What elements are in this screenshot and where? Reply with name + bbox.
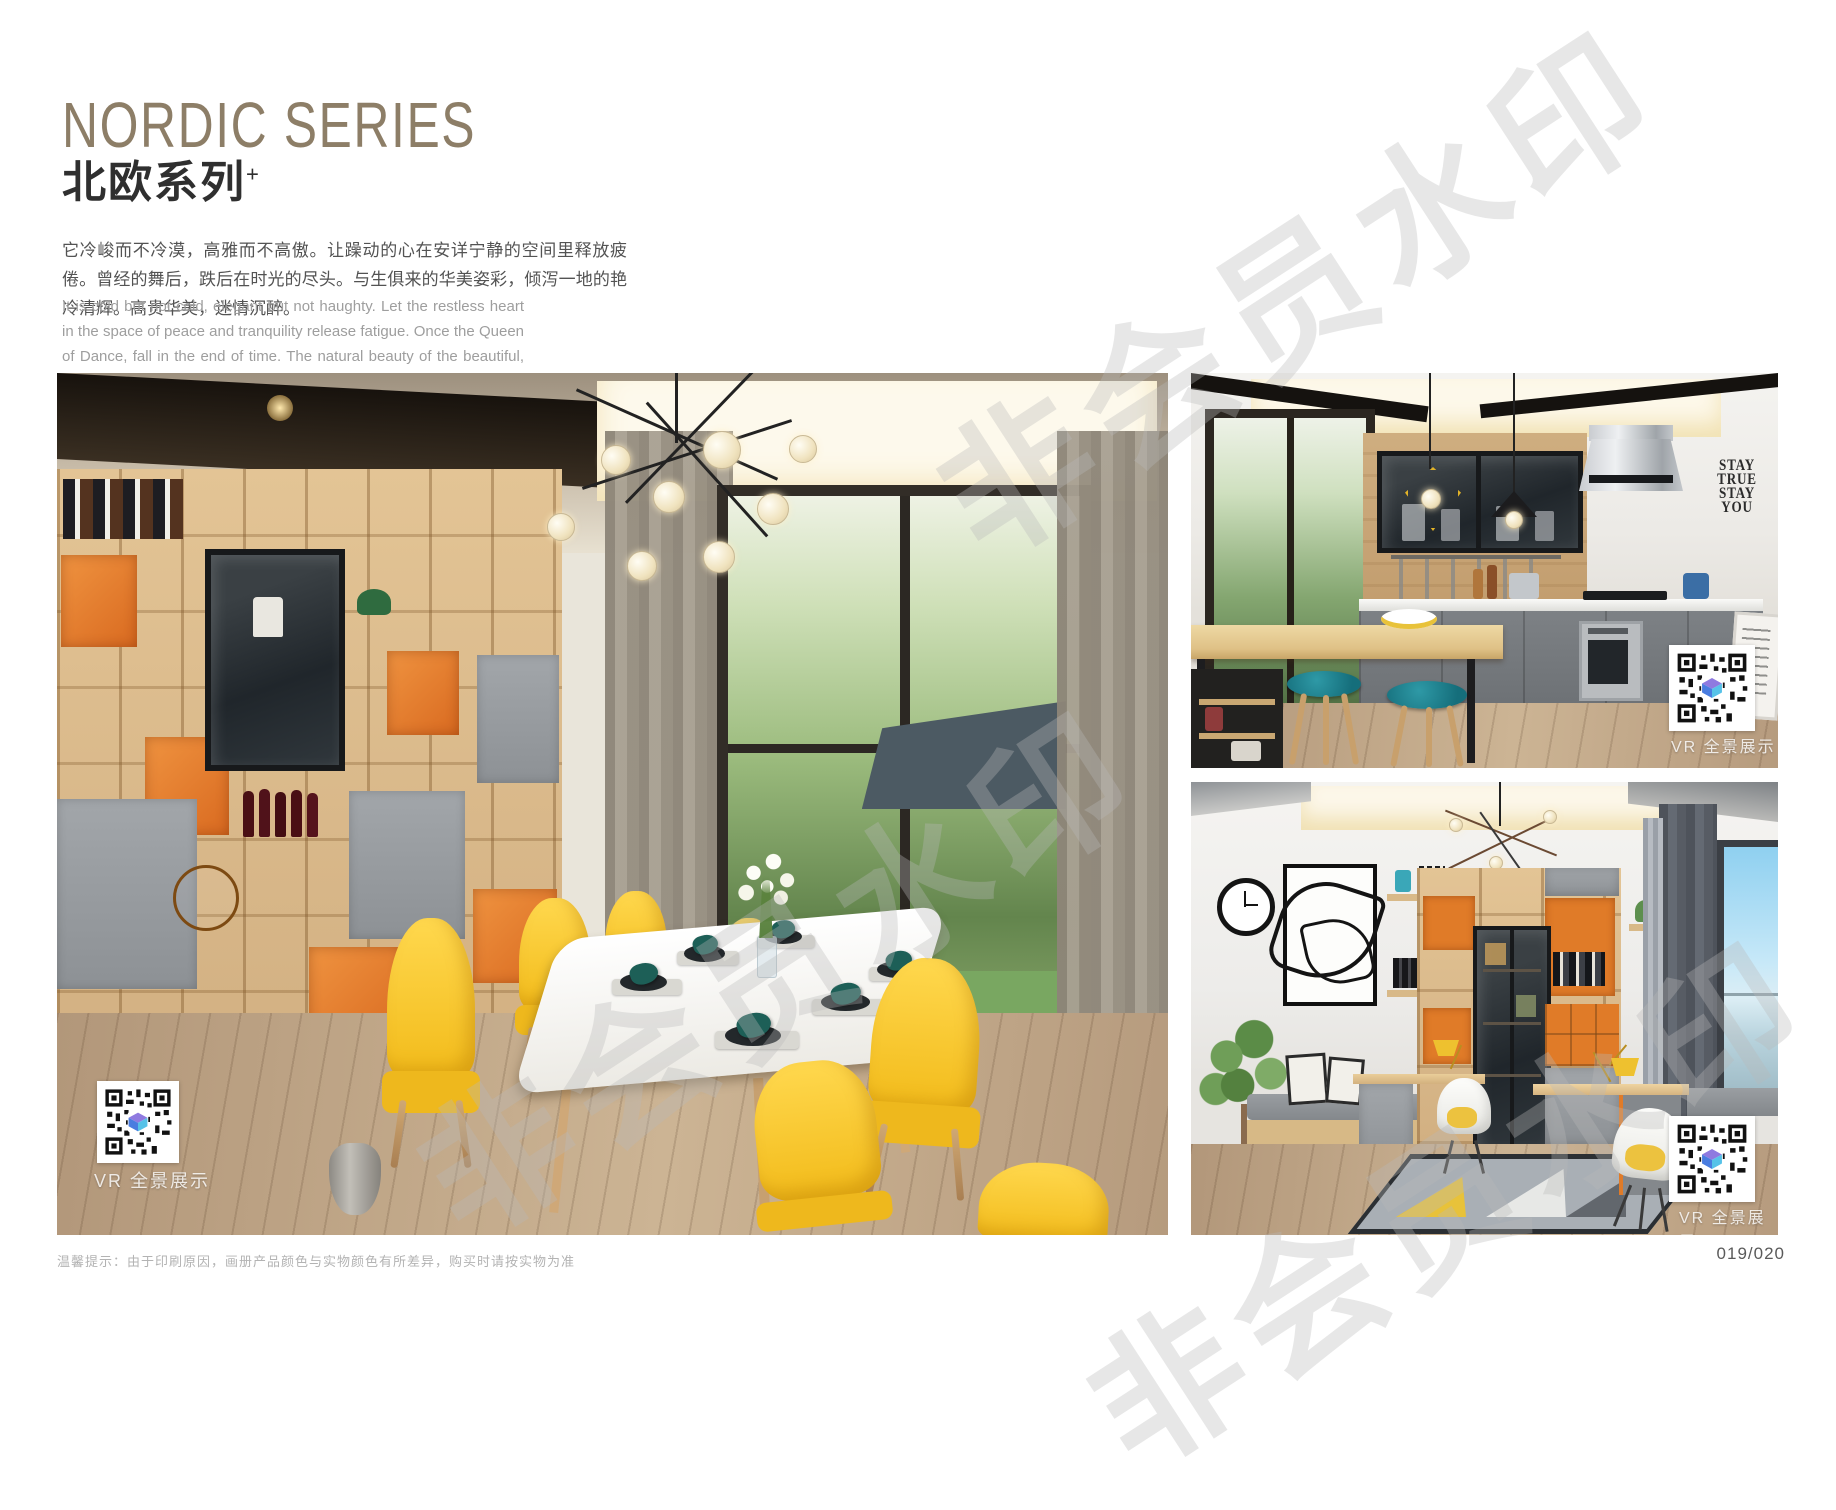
cooking-pot	[1509, 573, 1539, 599]
desk-lamp-yellow	[1583, 1040, 1639, 1088]
glass-display-cabinet	[205, 549, 345, 771]
built-in-oven	[1579, 621, 1643, 701]
study-room-photo: VR 全景展示	[1191, 782, 1778, 1235]
pendant-cord	[1429, 373, 1431, 469]
coffee-maker	[1683, 573, 1709, 599]
blue-vase	[1395, 870, 1411, 892]
gray-cabinet-door	[349, 791, 465, 939]
flower-vase	[705, 828, 825, 978]
hood-chimney	[1589, 425, 1673, 441]
wine-rack-ring	[173, 865, 239, 931]
oil-bottle	[1487, 565, 1497, 599]
footer-disclaimer: 温馨提示：由于印刷原因，画册产品颜色与实物颜色有所差异，购买时请按实物为准	[57, 1251, 575, 1270]
island-shelf-frame	[1191, 669, 1283, 768]
vr-qr-code	[97, 1081, 179, 1163]
curtain-right	[1057, 431, 1168, 1071]
wine-bottles	[243, 787, 353, 837]
study-window	[1717, 840, 1778, 1106]
pendant-bulb	[1505, 511, 1523, 529]
range-hood	[1579, 439, 1683, 491]
roof-outside	[862, 701, 1066, 809]
kitchen-photo: STAY TRUE STAY YOU	[1191, 373, 1778, 768]
catalog-page: NORDIC SERIES 北欧系列+ 它冷峻而不冷漠，高雅而不高傲。让躁动的心…	[0, 0, 1836, 1307]
fruit-bowl	[1381, 609, 1437, 629]
gray-upper-cabinet	[1545, 868, 1619, 896]
vr-panorama-label: VR 全景展示	[1671, 733, 1776, 757]
vr-qr-code	[1669, 645, 1755, 731]
leaning-frame	[1285, 1053, 1328, 1106]
pendant-cord	[1513, 373, 1515, 493]
gas-cooktop	[1583, 591, 1667, 600]
vr-panorama-label: VR 全景展示	[94, 1167, 210, 1193]
dining-room-photo: VR 全景展示	[57, 373, 1168, 1235]
island-leg	[1467, 659, 1475, 763]
upper-glass-cabinet	[1377, 451, 1583, 553]
gray-cabinet-door	[477, 655, 559, 783]
oil-bottle	[1473, 569, 1483, 599]
dining-chair	[977, 1160, 1111, 1235]
bar-stool	[1287, 671, 1361, 697]
wall-decal-stay-true: STAY TRUE STAY YOU	[1716, 459, 1759, 515]
orange-cubby	[1545, 898, 1615, 996]
sheer-curtain	[1643, 818, 1663, 1118]
desk-lamp-yellow	[1429, 1040, 1469, 1080]
orange-cubby	[1423, 896, 1475, 950]
shell-chair	[1437, 1078, 1491, 1174]
dining-chair	[748, 1055, 888, 1235]
pendant-bulb	[1421, 489, 1441, 509]
island-bar-top	[1191, 625, 1503, 659]
bar-stool	[1387, 681, 1467, 709]
chandelier	[507, 373, 847, 608]
recessed-light	[267, 395, 293, 421]
shelving-unit	[57, 469, 562, 1069]
place-setting	[715, 1025, 799, 1055]
orange-cubby	[61, 555, 137, 647]
subtitle-plus: +	[246, 161, 261, 186]
page-subtitle: 北欧系列+	[62, 146, 261, 210]
subtitle-text: 北欧系列	[62, 158, 246, 207]
place-setting	[612, 973, 682, 999]
potted-plant	[357, 589, 391, 615]
abstract-art-frame	[1283, 864, 1377, 1006]
books-row	[63, 479, 183, 539]
vr-panorama-label: VR 全景展示	[1679, 1204, 1778, 1235]
window-seat-cushion	[1687, 1088, 1778, 1116]
vr-qr-code	[1669, 1116, 1755, 1202]
page-number: 019/020	[1690, 1244, 1785, 1264]
orange-cubby	[387, 651, 459, 735]
vase	[253, 597, 283, 637]
dining-chair	[387, 918, 475, 1168]
wall-clock	[1217, 878, 1275, 936]
